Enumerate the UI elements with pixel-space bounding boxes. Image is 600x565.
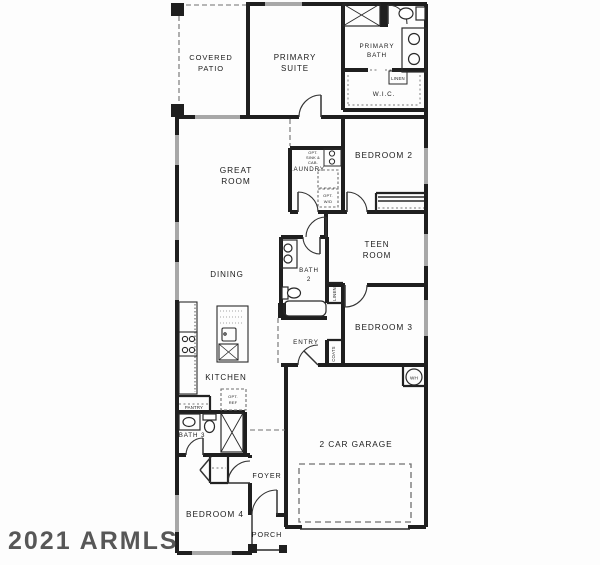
label-primary-suite: PRIMARY: [274, 53, 317, 62]
label-dining: DINING: [210, 270, 243, 279]
label-primary-bath: BATH: [367, 52, 387, 59]
label-opt-wd: OPT.: [323, 193, 333, 198]
label-primary-suite: SUITE: [281, 64, 309, 73]
label-porch: PORCH: [252, 530, 282, 539]
label-laundry: LAUNDRY: [289, 166, 325, 173]
label-wh: WH: [410, 376, 418, 381]
label-bedroom4: BEDROOM 4: [186, 509, 244, 519]
floor-plan-svg: COVERED PATIO PRIMARY SUITE PRIMARY BATH…: [0, 0, 600, 565]
label-teen-room: ROOM: [363, 251, 392, 260]
label-wic: W.I.C.: [373, 91, 396, 98]
label-garage: 2 CAR GARAGE: [319, 439, 392, 449]
label-entry: ENTRY: [293, 339, 319, 346]
label-bath2: 2: [307, 276, 311, 283]
label-bedroom2: BEDROOM 2: [355, 150, 413, 160]
label-coats: COATS: [331, 346, 336, 361]
label-opt-wd: W/D: [324, 199, 332, 204]
label-linen-bath: LINEN: [391, 76, 405, 81]
label-pantry: PANTRY: [185, 405, 203, 410]
label-opt-sink: CAB.: [308, 160, 318, 165]
floor-plan-page: COVERED PATIO PRIMARY SUITE PRIMARY BATH…: [0, 0, 600, 565]
label-bedroom3: BEDROOM 3: [355, 322, 413, 332]
label-great-room: ROOM: [221, 176, 250, 186]
watermark: 2021 ARMLS: [8, 527, 179, 555]
label-opt-ref: REF: [229, 400, 238, 405]
label-bath2: BATH: [299, 267, 319, 274]
label-foyer: FOYER: [252, 471, 281, 480]
label-kitchen: KITCHEN: [205, 373, 246, 382]
label-linen-hall: LINEN: [332, 287, 337, 301]
laundry-fixtures: [324, 149, 341, 166]
label-covered-patio: PATIO: [198, 64, 224, 73]
thin-structure-lines: [252, 197, 424, 550]
label-primary-bath: PRIMARY: [360, 43, 395, 50]
label-bath3: BATH 3: [179, 432, 206, 439]
label-opt-ref: OPT.: [228, 394, 238, 399]
label-covered-patio: COVERED: [189, 53, 232, 62]
label-teen-room: TEEN: [365, 240, 390, 249]
label-great-room: GREAT: [220, 165, 252, 175]
